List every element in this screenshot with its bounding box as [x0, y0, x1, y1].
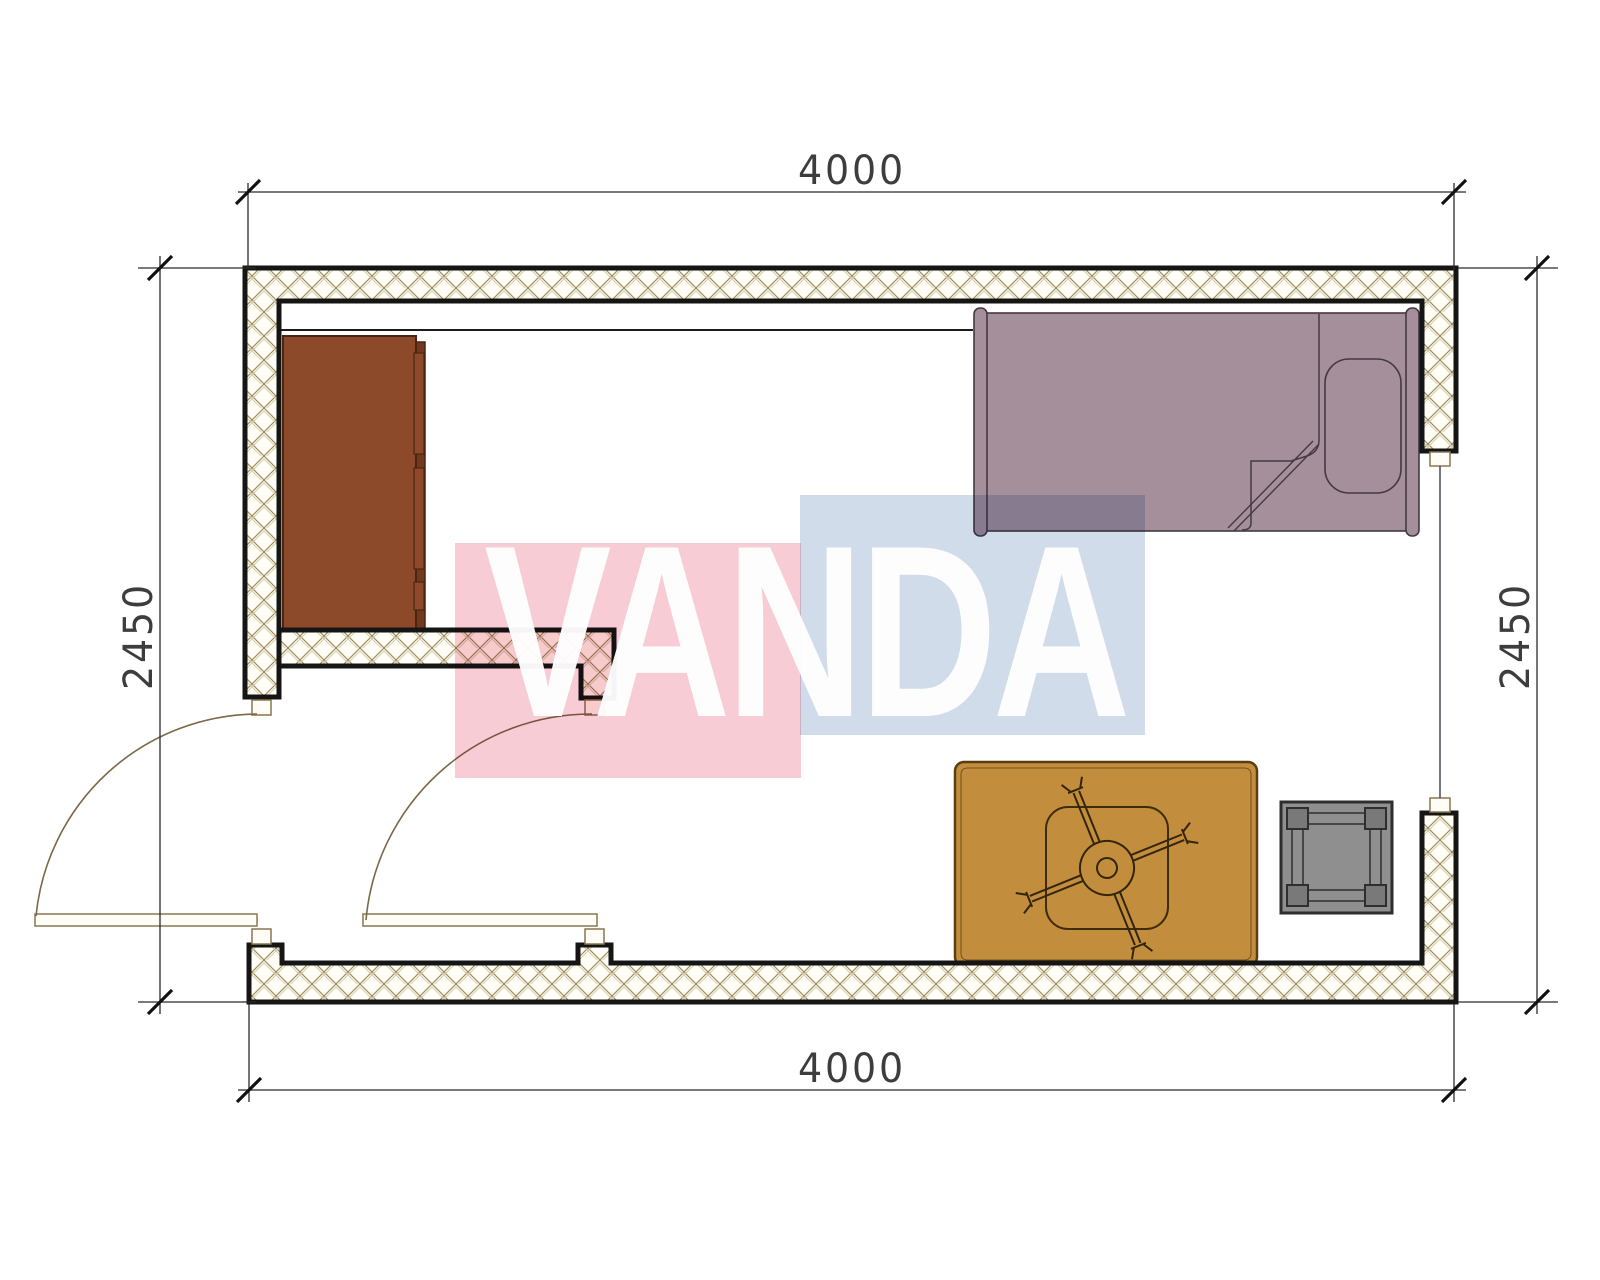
- watermark-text: VANDA: [484, 494, 1126, 768]
- vestibule-door-jamb-bottom: [585, 929, 604, 944]
- entrance-door-swing-arc: [36, 714, 257, 916]
- window-jamb-bottom: [1430, 798, 1450, 812]
- wardrobe-shelf-3: [414, 582, 424, 610]
- entrance-door-jamb-bottom: [252, 929, 271, 944]
- rug: [955, 762, 1257, 966]
- floor-plan-svg: 4000 4000 2450 2450 VANDA: [0, 0, 1600, 1280]
- dim-text-left: 2450: [116, 582, 162, 690]
- entrance-door: [35, 700, 271, 944]
- floor-plan-page: 4000 4000 2450 2450 VANDA: [0, 0, 1600, 1280]
- entrance-door-jamb-top: [252, 700, 271, 715]
- wall-bottom-right: [249, 813, 1456, 1002]
- rug-with-dryer: [955, 746, 1257, 991]
- dim-text-right: 2450: [1493, 582, 1539, 690]
- window-jamb-top: [1430, 452, 1450, 466]
- dim-text-top: 4000: [798, 148, 906, 194]
- window: [1430, 452, 1450, 812]
- vestibule-door-leaf: [363, 914, 597, 926]
- watermark: VANDA: [455, 494, 1145, 778]
- wardrobe-shelf-1: [414, 353, 424, 454]
- wardrobe-body: [283, 336, 416, 630]
- entrance-door-leaf: [35, 914, 257, 926]
- wardrobe: [283, 336, 425, 634]
- dim-text-bottom: 4000: [798, 1046, 906, 1092]
- stool-table: [1281, 802, 1392, 913]
- bed-footboard: [1406, 308, 1419, 536]
- wardrobe-shelf-2: [414, 468, 424, 569]
- pillow: [1325, 359, 1401, 493]
